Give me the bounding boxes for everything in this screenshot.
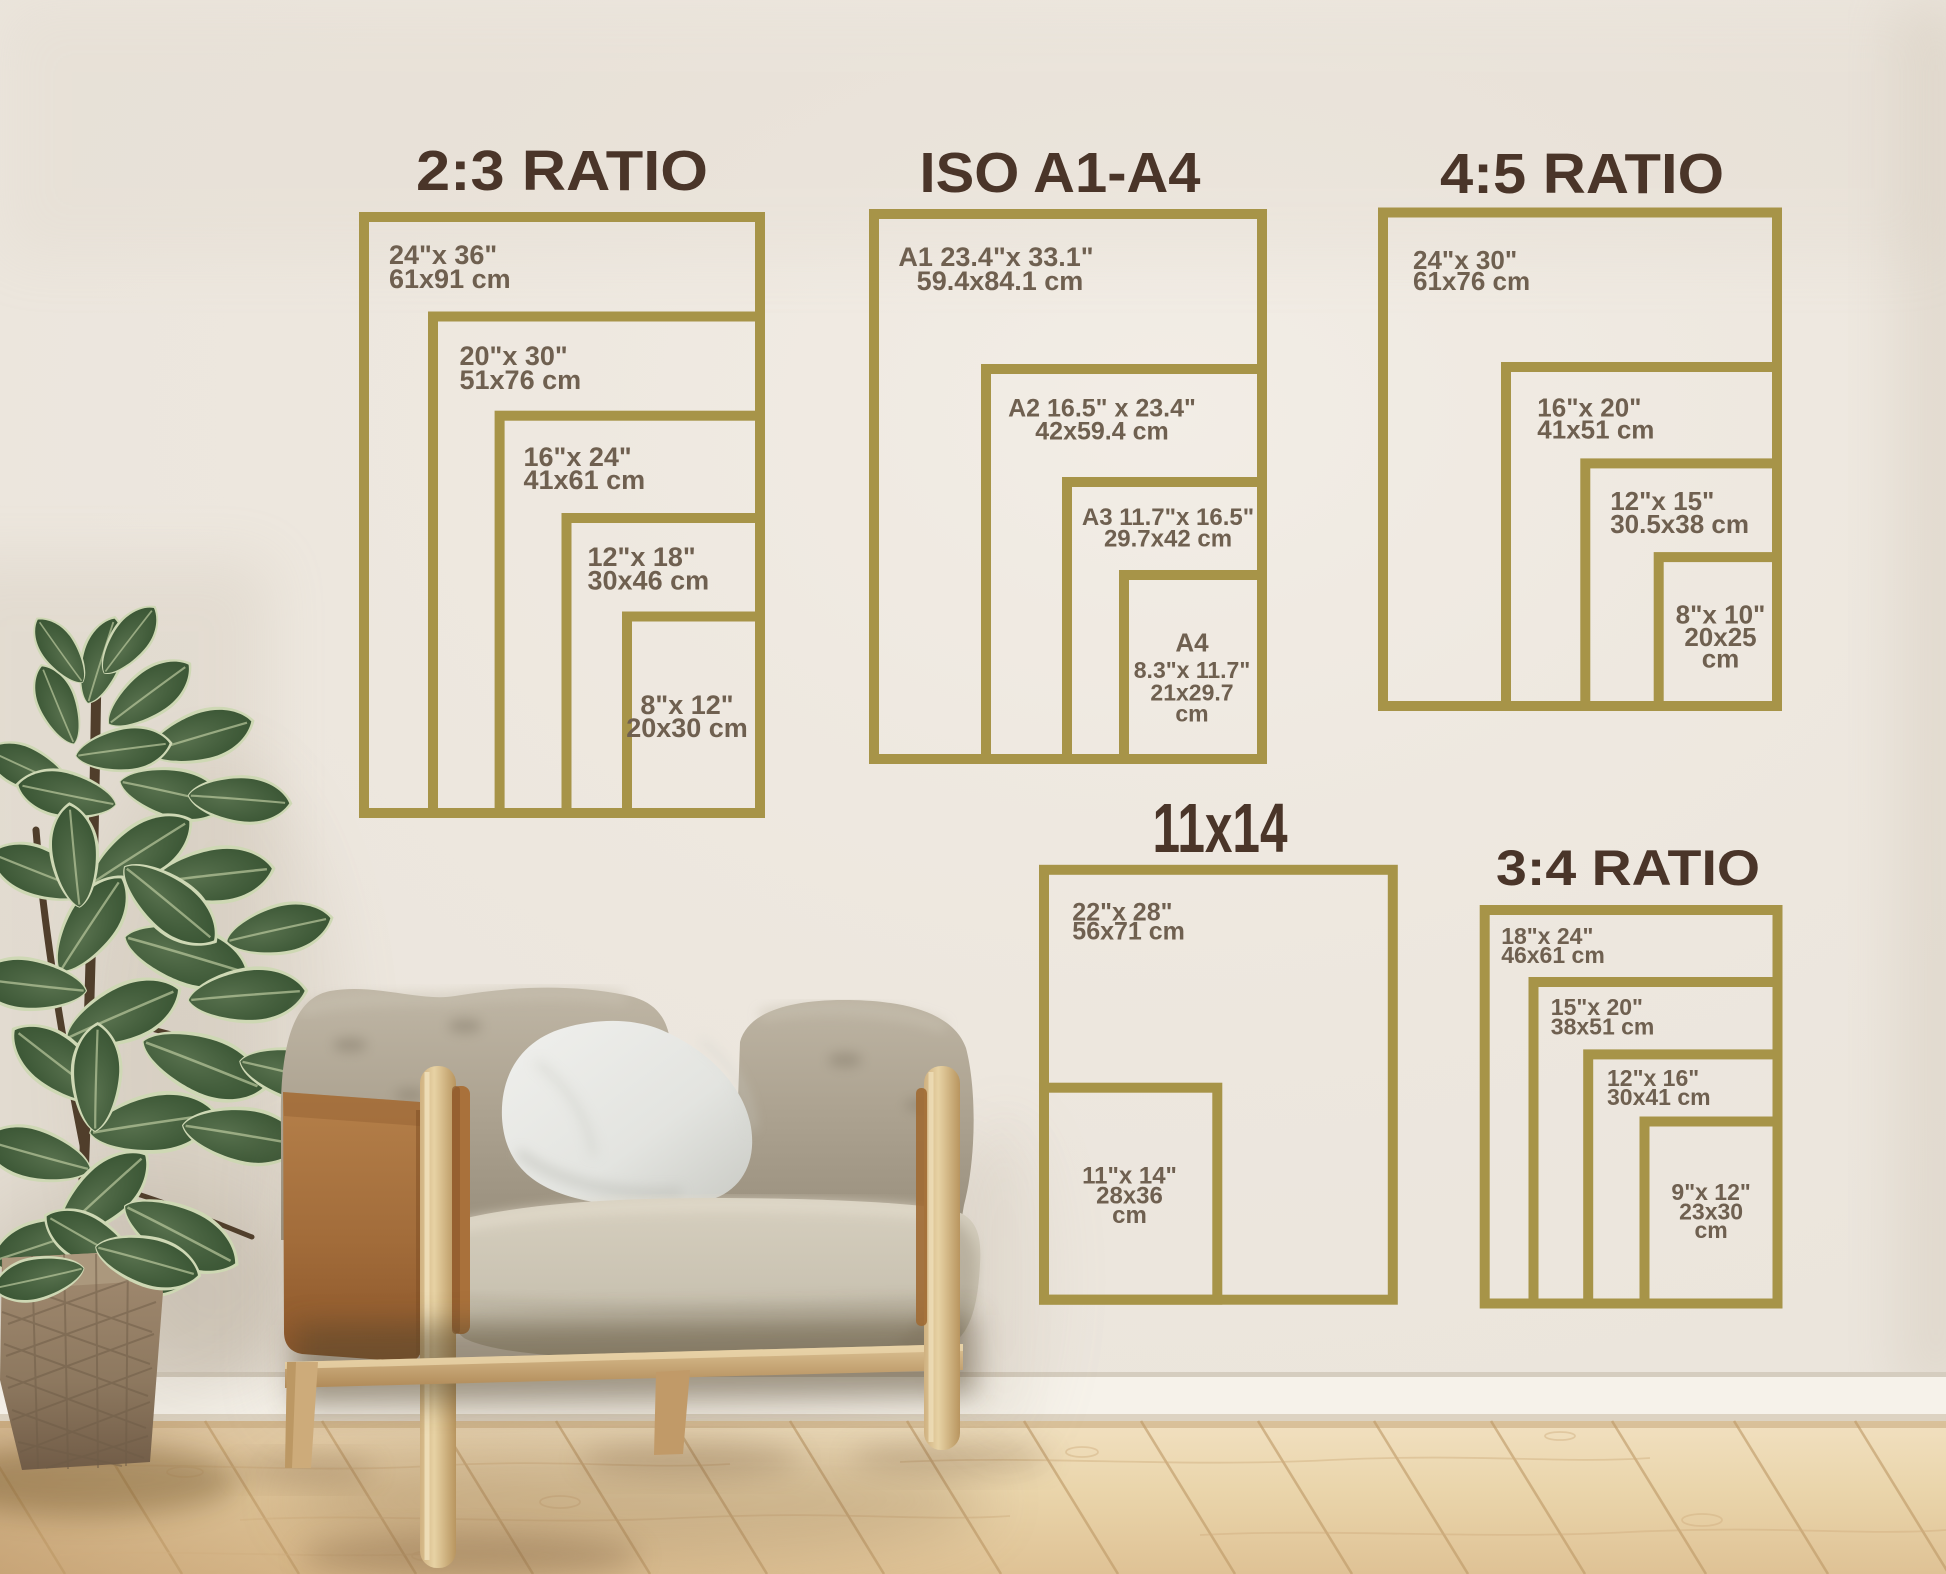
svg-text:56x71 cm: 56x71 cm (1072, 918, 1185, 946)
svg-text:29.7x42 cm: 29.7x42 cm (1104, 525, 1232, 552)
svg-text:41x51 cm: 41x51 cm (1537, 414, 1654, 444)
svg-text:2:3 RATIO: 2:3 RATIO (416, 139, 708, 203)
svg-text:30x46 cm: 30x46 cm (588, 566, 710, 596)
svg-text:38x51 cm: 38x51 cm (1551, 1013, 1655, 1039)
svg-text:ISO A1-A4: ISO A1-A4 (920, 141, 1201, 205)
svg-text:41x61 cm: 41x61 cm (524, 465, 646, 495)
svg-text:61x76 cm: 61x76 cm (1413, 266, 1530, 296)
svg-text:46x61 cm: 46x61 cm (1501, 942, 1605, 968)
svg-text:61x91 cm: 61x91 cm (389, 264, 511, 294)
svg-text:3:4 RATIO: 3:4 RATIO (1496, 840, 1760, 896)
svg-text:cm: cm (1175, 701, 1208, 727)
svg-text:30x41 cm: 30x41 cm (1607, 1084, 1711, 1110)
svg-text:42x59.4 cm: 42x59.4 cm (1035, 418, 1168, 446)
svg-text:59.4x84.1 cm: 59.4x84.1 cm (917, 266, 1084, 296)
svg-text:A4: A4 (1175, 628, 1209, 658)
svg-text:30.5x38 cm: 30.5x38 cm (1610, 509, 1749, 539)
svg-text:4:5 RATIO: 4:5 RATIO (1440, 142, 1724, 206)
svg-text:51x76 cm: 51x76 cm (460, 365, 582, 395)
svg-text:11x14: 11x14 (1153, 789, 1288, 867)
svg-text:cm: cm (1112, 1202, 1147, 1229)
svg-text:cm: cm (1702, 644, 1740, 674)
svg-text:cm: cm (1694, 1217, 1727, 1243)
svg-text:20x30 cm: 20x30 cm (626, 713, 748, 743)
